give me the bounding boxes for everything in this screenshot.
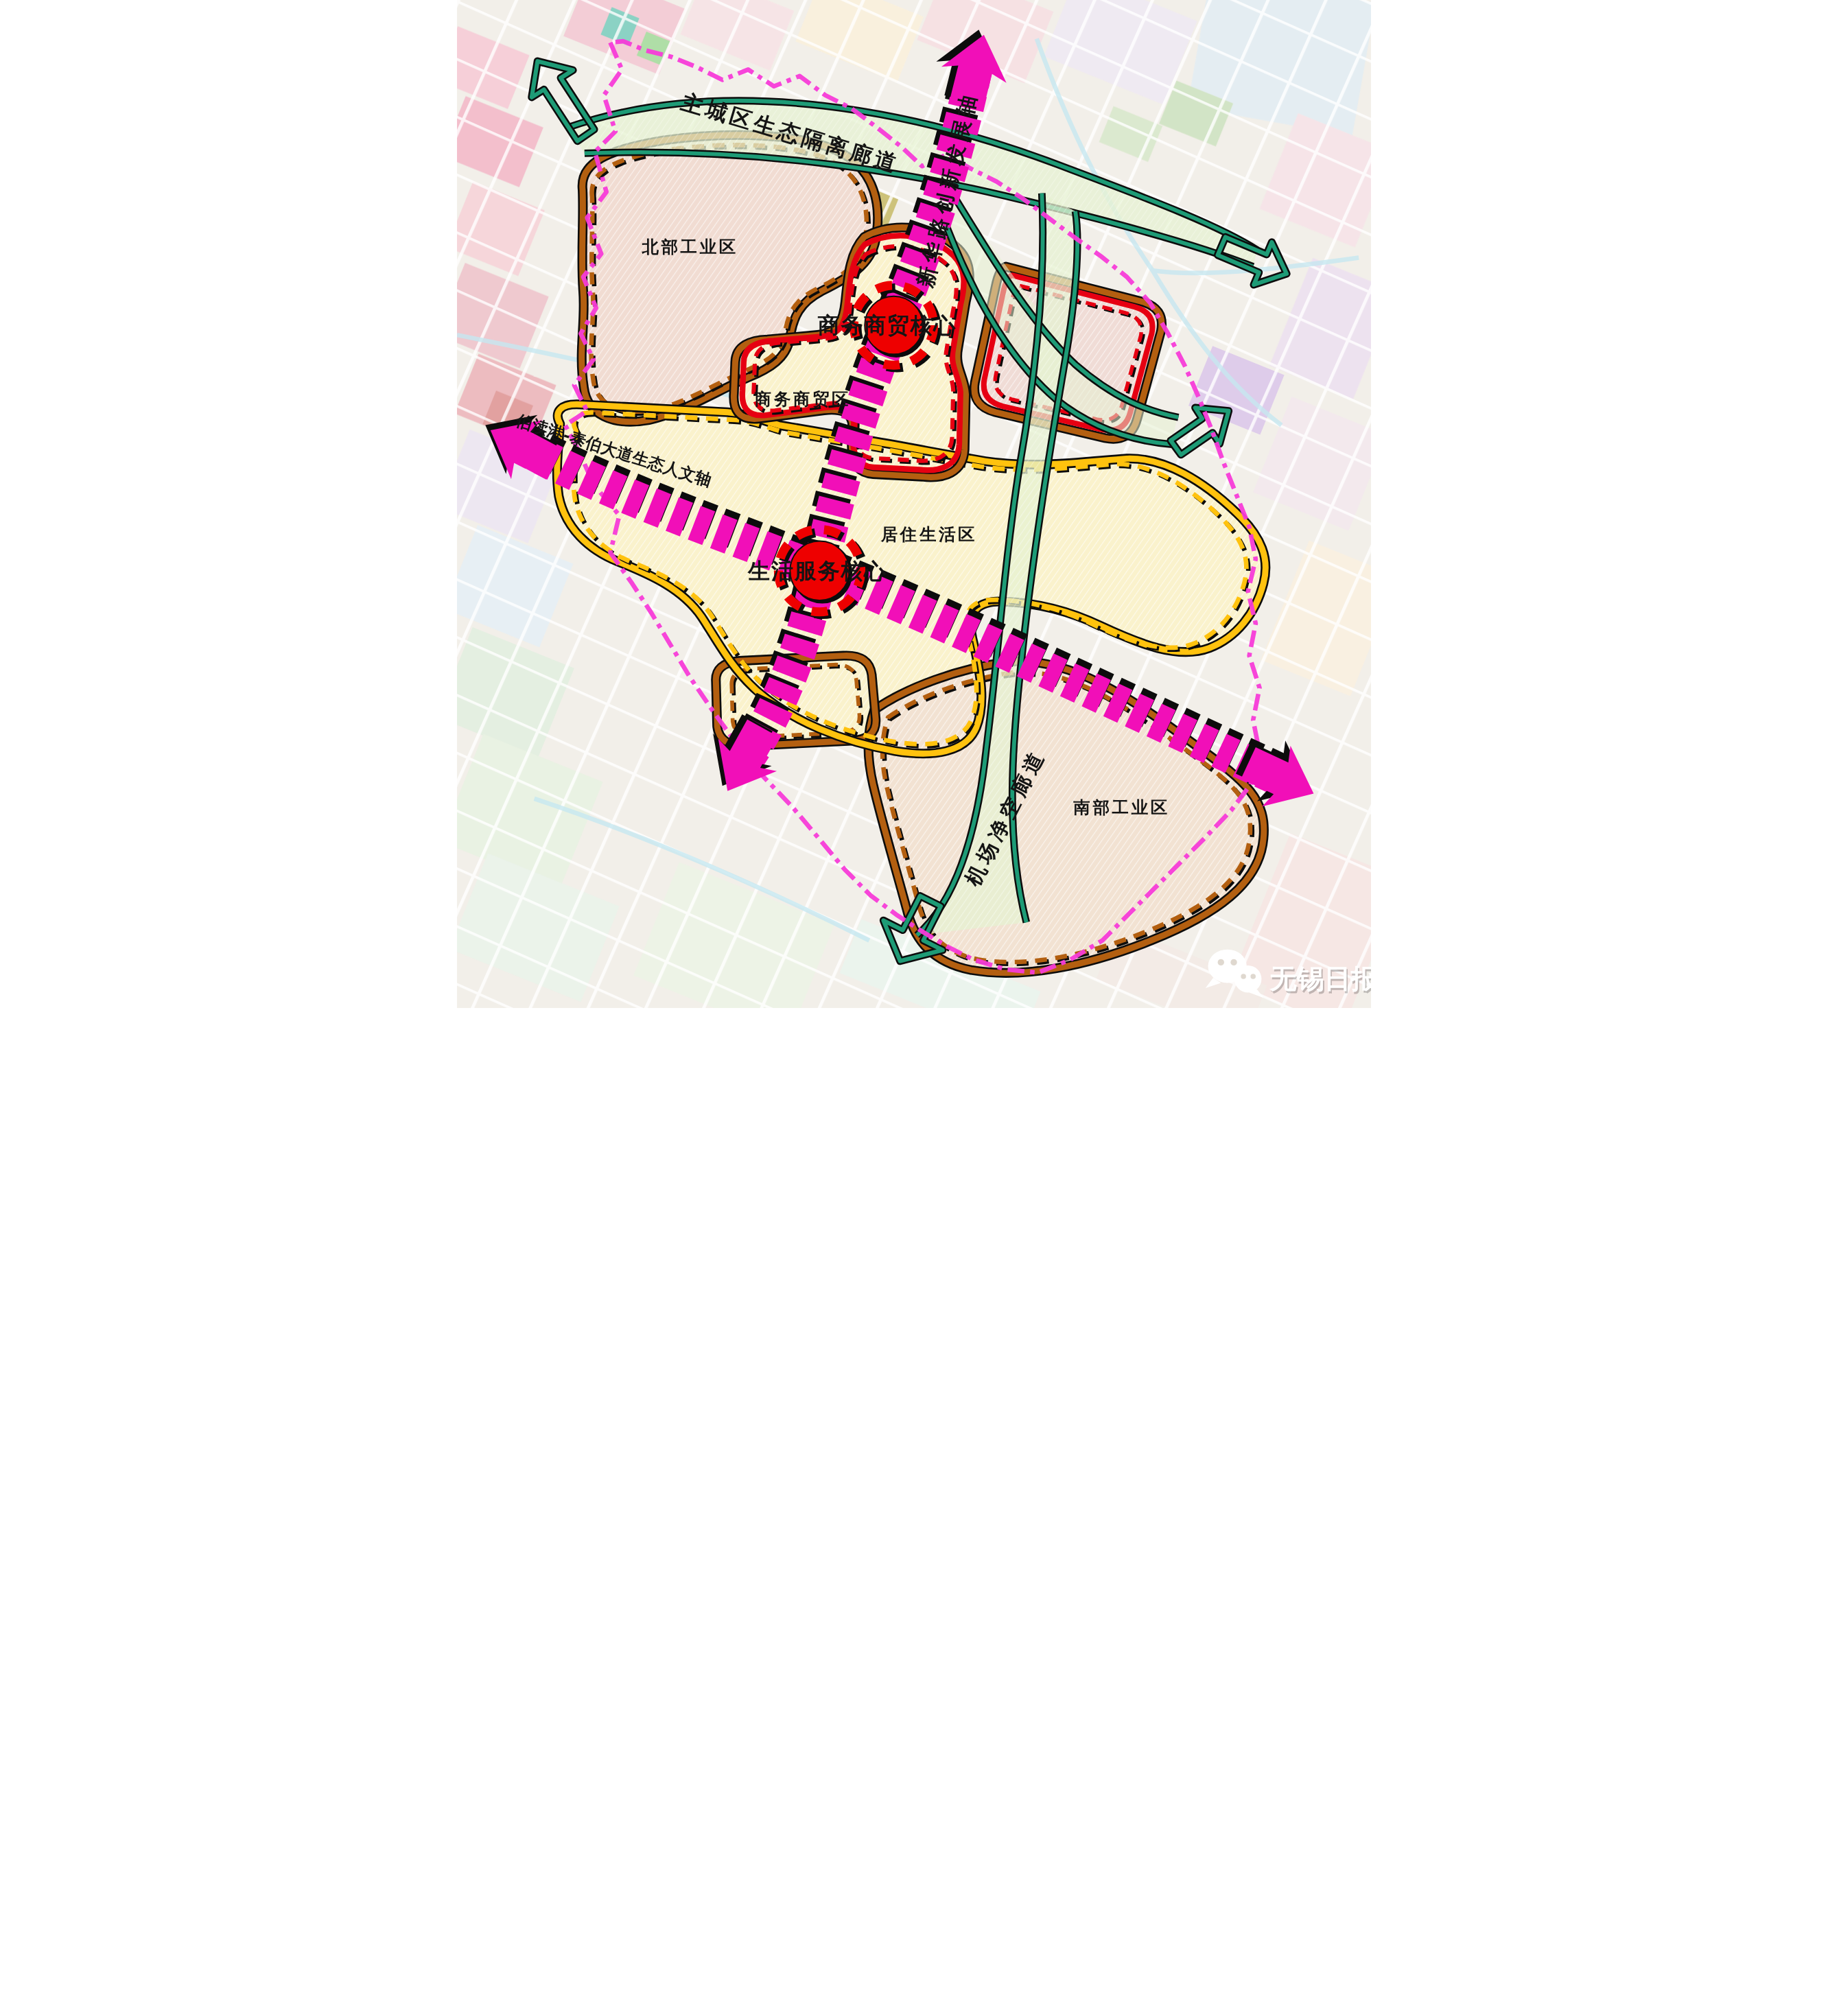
watermark-text: 无锡日报 — [1269, 963, 1371, 994]
south-industrial-label: 南部工业区 — [1073, 797, 1170, 817]
business-zone-label: 商务商贸区 — [754, 389, 852, 409]
business-core-label: 商务商贸核心 — [818, 312, 957, 338]
north-industrial-label: 北部工业区 — [641, 237, 738, 257]
planning-map: 主城区生态隔离廊道 新华路创新发展轴 伯渎港-泰伯大道生态人文轴 机场净空廊道 … — [457, 0, 1371, 1008]
residential-zone-label: 居住生活区 — [880, 524, 978, 544]
life-core-label: 生活服务核心 — [747, 558, 887, 584]
